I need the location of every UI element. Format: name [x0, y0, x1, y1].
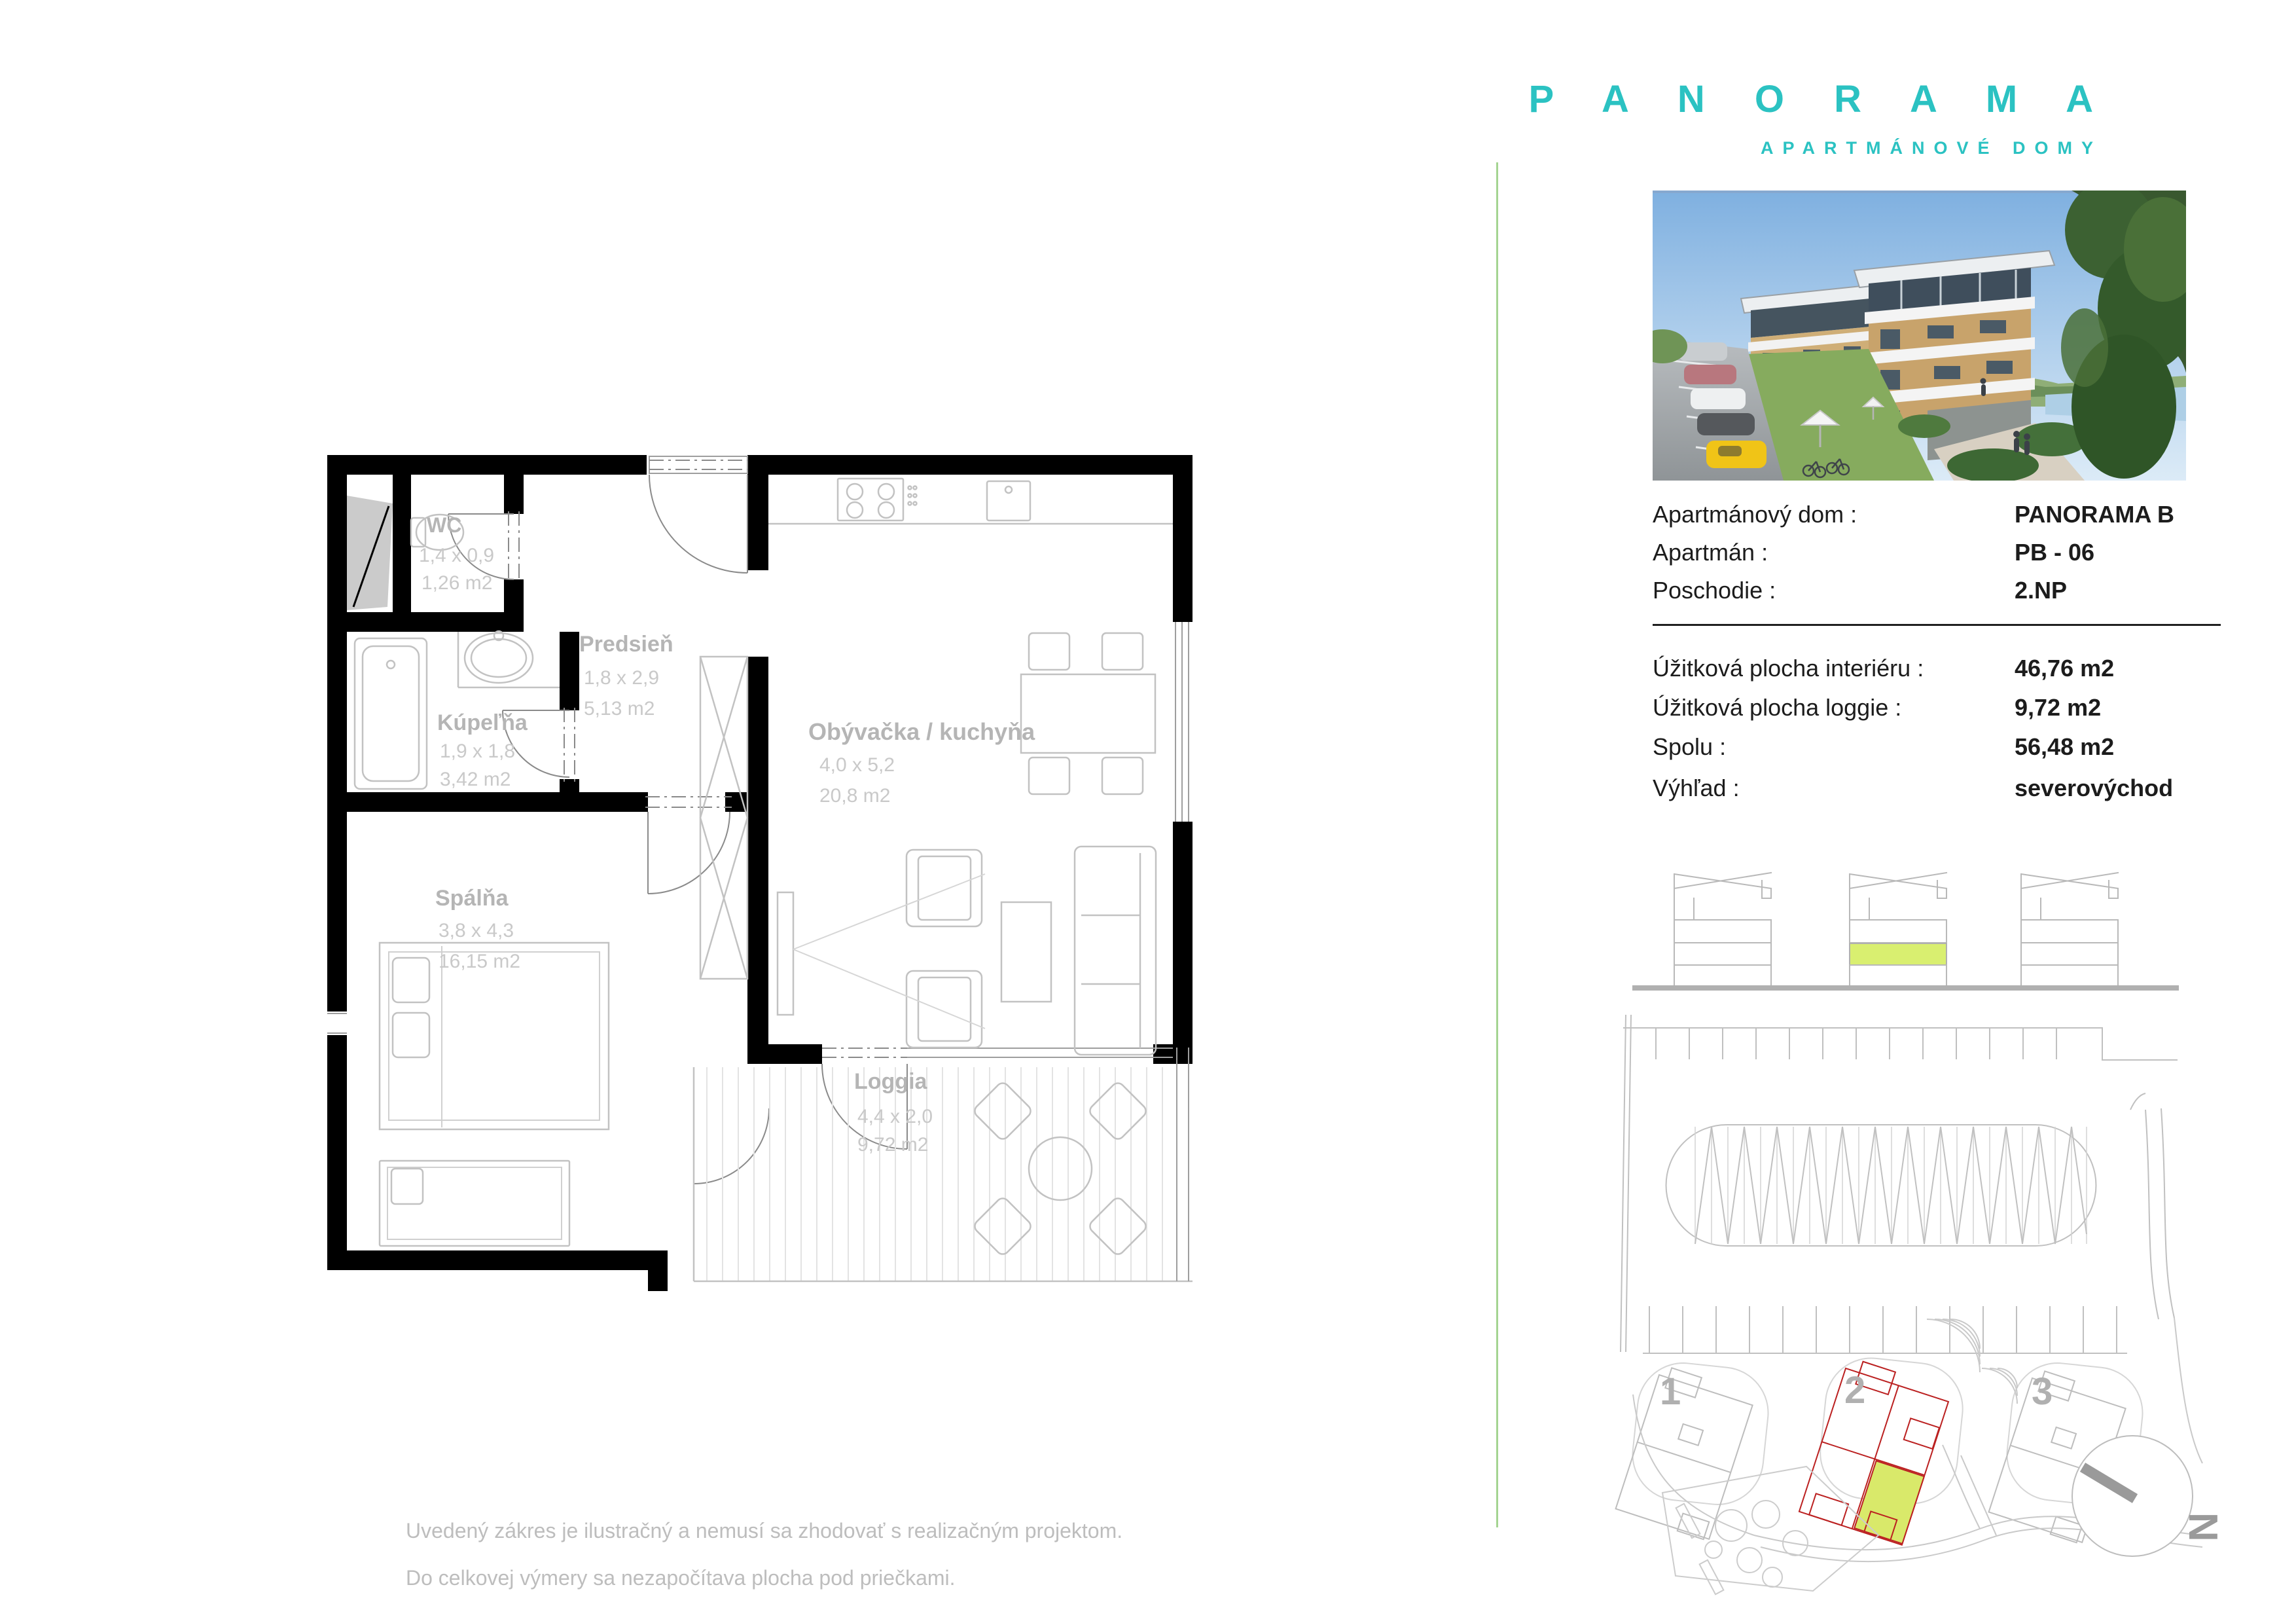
- svg-text:1,4 x 0,9: 1,4 x 0,9: [419, 545, 494, 566]
- table-divider-line: [1653, 624, 2221, 626]
- svg-text:16,15 m2: 16,15 m2: [439, 951, 520, 972]
- highlighted-floor: [1850, 943, 1946, 965]
- detail-label: Poschodie :: [1653, 577, 1776, 604]
- disclaimer-line-2: Do celkovej výmery sa nezapočítava ploch…: [406, 1554, 1122, 1601]
- area-value: 56,48 m2: [2015, 733, 2114, 761]
- area-label: Úžitková plocha interiéru :: [1653, 655, 1924, 682]
- area-value: 9,72 m2: [2015, 694, 2101, 721]
- detail-value: PANORAMA B: [2015, 501, 2174, 528]
- room-label-loggia: Loggia: [854, 1069, 928, 1094]
- svg-text:4,4 x 2,0: 4,4 x 2,0: [857, 1106, 933, 1127]
- disclaimer: Uvedený zákres je ilustračný a nemusí sa…: [406, 1507, 1122, 1601]
- loggia-table-set: [972, 1080, 1148, 1256]
- site-boundary: [1621, 1015, 1626, 1352]
- area-label: Výhľad :: [1653, 775, 1740, 802]
- site-plan: 1 2 3 N: [1597, 1012, 2251, 1597]
- site-building-number-2: 2: [1844, 1369, 1865, 1412]
- room-label-hall: Predsieň: [579, 632, 673, 657]
- wardrobe: [700, 657, 747, 979]
- area-value: severovýchod: [2015, 775, 2173, 802]
- svg-text:1,9 x 1,8: 1,9 x 1,8: [440, 740, 515, 762]
- sofa: [1075, 847, 1156, 1055]
- room-label-bath: Kúpeľňa: [437, 710, 528, 735]
- entrance-niche: [649, 456, 747, 473]
- disclaimer-line-1: Uvedený zákres je ilustračný a nemusí sa…: [406, 1507, 1122, 1554]
- bathtub: [355, 638, 427, 789]
- svg-text:1,26 m2: 1,26 m2: [422, 572, 492, 594]
- amphitheatre-arcs: [1927, 1319, 2017, 1404]
- detail-label: Apartmán :: [1653, 539, 1768, 566]
- detail-value: 2.NP: [2015, 577, 2067, 604]
- area-label: Úžitková plocha loggie :: [1653, 694, 1901, 721]
- armchair: [906, 850, 982, 926]
- detail-label: Apartmánový dom :: [1653, 501, 1857, 528]
- doors: [448, 460, 907, 1184]
- room-label-living: Obývačka / kuchyňa: [808, 718, 1035, 745]
- dining-set: [1021, 633, 1155, 794]
- svg-text:4,0 x 5,2: 4,0 x 5,2: [819, 754, 895, 776]
- room-label-wc: WC: [427, 513, 461, 537]
- parking-stalls-bottom: [1649, 1306, 2117, 1353]
- room-label-bedroom: Spálňa: [435, 886, 509, 911]
- elevation-building-3: [2021, 873, 2118, 987]
- site-building-number-3: 3: [2032, 1370, 2053, 1413]
- svg-text:9,72 m2: 9,72 m2: [857, 1134, 928, 1156]
- glass-wall: [907, 1048, 1173, 1057]
- kitchen-counter: [768, 479, 1173, 524]
- window-right: [1175, 622, 1189, 822]
- parking-zigzag: [1695, 1127, 2087, 1244]
- north-label: N: [2180, 1512, 2225, 1542]
- svg-text:1,8 x 2,9: 1,8 x 2,9: [584, 667, 659, 689]
- elevation-building-2: [1850, 873, 1946, 987]
- tv-view-lines: [793, 874, 985, 1029]
- coffee-table: [1001, 902, 1051, 1002]
- building-render-photo: [1653, 191, 2186, 481]
- svg-text:3,8 x 4,3: 3,8 x 4,3: [439, 920, 514, 941]
- svg-text:5,13 m2: 5,13 m2: [584, 698, 655, 720]
- area-label: Spolu :: [1653, 733, 1726, 761]
- logo: P A N O R A M A APARTMÁNOVÉ DOMY: [1528, 77, 2093, 158]
- elevation-building-1: [1674, 873, 1771, 987]
- elevation-diagram: [1630, 858, 2179, 998]
- area-value: 46,76 m2: [2015, 655, 2114, 682]
- site-building-number-1: 1: [1660, 1370, 1681, 1413]
- bathroom-sink: [458, 631, 560, 687]
- site-building-1: [1615, 1365, 1756, 1541]
- detail-value: PB - 06: [2015, 539, 2094, 566]
- logo-title: P A N O R A M A: [1528, 77, 2113, 121]
- playground: [1662, 1467, 1878, 1594]
- brochure-page: P A N O R A M A APARTMÁNOVÉ DOMY: [0, 0, 2296, 1623]
- north-compass: N: [2072, 1436, 2225, 1556]
- single-bed: [380, 1161, 569, 1246]
- site-building-2-highlight: [1799, 1357, 1952, 1545]
- window-left: [327, 1012, 347, 1035]
- svg-text:20,8 m2: 20,8 m2: [819, 785, 890, 807]
- vertical-divider: [1496, 162, 1498, 1527]
- floor-plan: WC 1,4 x 0,9 1,26 m2 Predsieň 1,8 x 2,9 …: [327, 455, 1198, 1293]
- logo-subtitle: APARTMÁNOVÉ DOMY: [1528, 138, 2102, 158]
- tv-board: [778, 892, 793, 1015]
- parking-stalls-top: [1656, 1028, 2056, 1059]
- svg-text:3,42 m2: 3,42 m2: [440, 769, 511, 790]
- armchair: [906, 971, 982, 1048]
